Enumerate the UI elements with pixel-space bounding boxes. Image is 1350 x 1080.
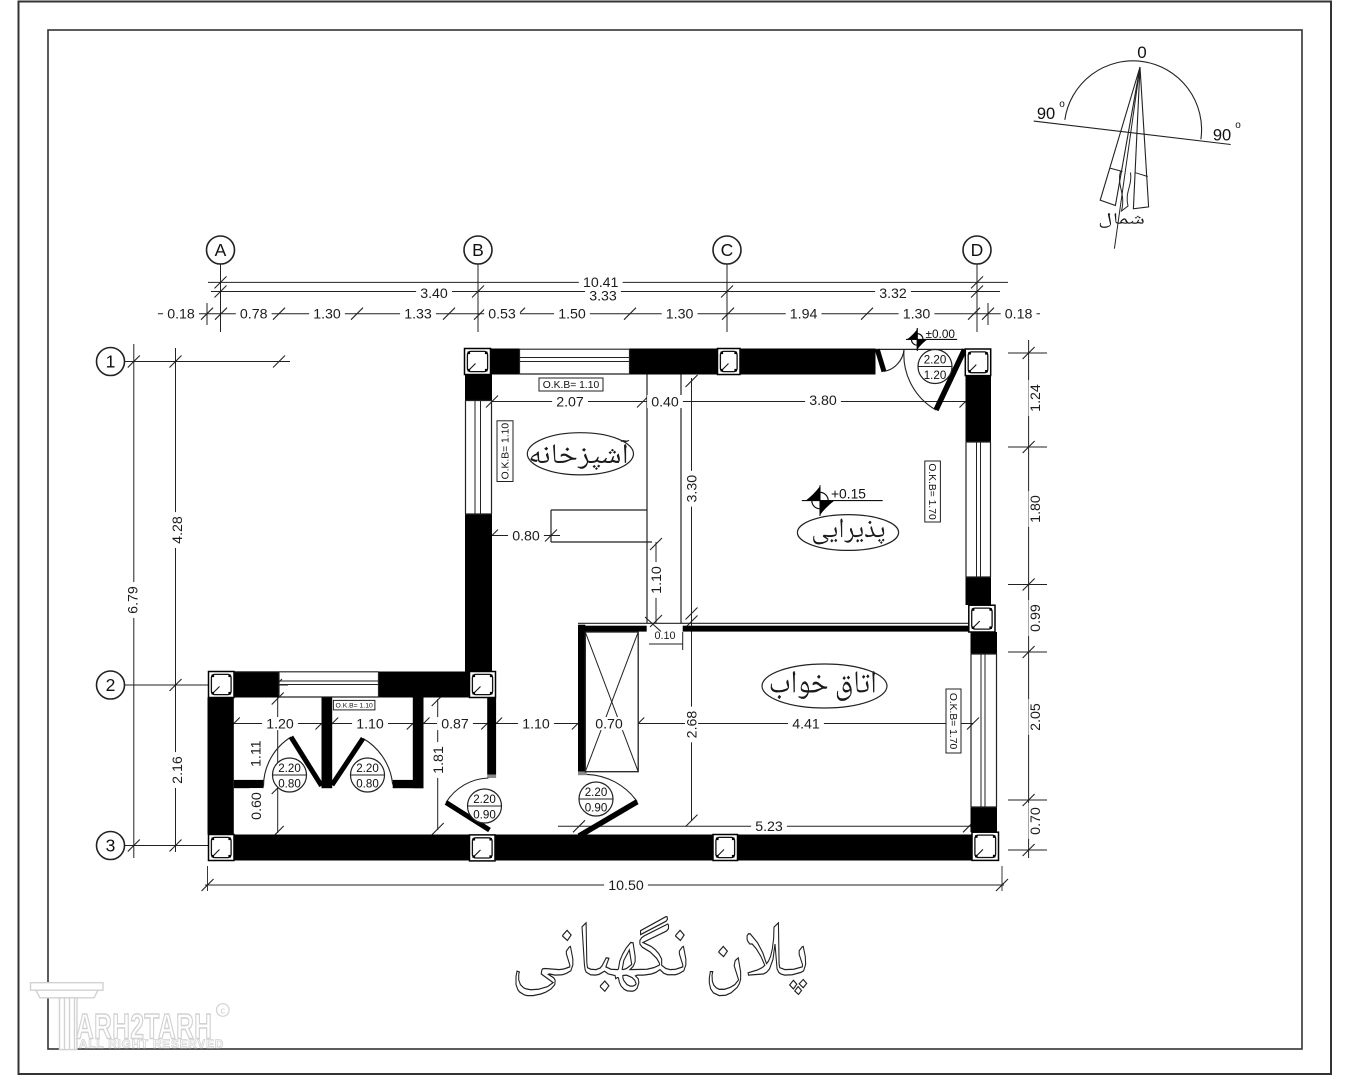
svg-text:6.79: 6.79	[125, 586, 141, 614]
svg-text:0.80: 0.80	[512, 528, 540, 544]
svg-text:0.99: 0.99	[1028, 604, 1044, 632]
svg-text:0.87: 0.87	[441, 716, 469, 732]
svg-text:0.53: 0.53	[488, 307, 516, 323]
svg-text:o: o	[1235, 120, 1241, 131]
svg-text:0.18: 0.18	[167, 307, 195, 323]
svg-text:B: B	[472, 240, 484, 260]
svg-text:0.80: 0.80	[278, 777, 301, 790]
svg-text:2.20: 2.20	[278, 762, 301, 775]
svg-text:90: 90	[1213, 127, 1231, 145]
svg-text:3: 3	[106, 836, 116, 856]
svg-text:4.41: 4.41	[792, 716, 820, 732]
svg-text:o: o	[1059, 99, 1065, 110]
svg-text:2.20: 2.20	[356, 762, 379, 775]
svg-text:2.16: 2.16	[170, 756, 186, 784]
svg-text:1.24: 1.24	[1028, 384, 1044, 412]
svg-text:1.10: 1.10	[649, 566, 665, 594]
svg-text:0.40: 0.40	[651, 394, 679, 410]
svg-text:4.28: 4.28	[170, 516, 186, 544]
svg-text:1.30: 1.30	[313, 307, 341, 323]
svg-text:C: C	[721, 240, 734, 260]
svg-text:3.33: 3.33	[589, 288, 617, 304]
svg-text:1.10: 1.10	[522, 716, 550, 732]
svg-text:0.80: 0.80	[356, 777, 379, 790]
svg-text:1.20: 1.20	[266, 716, 294, 732]
svg-text:1.50: 1.50	[558, 307, 586, 323]
svg-text:1: 1	[106, 352, 116, 372]
svg-text:2.20: 2.20	[585, 786, 608, 799]
svg-text:1.80: 1.80	[1028, 495, 1044, 523]
svg-text:3.30: 3.30	[684, 475, 700, 503]
svg-text:0.60: 0.60	[249, 792, 265, 820]
svg-text:1.10: 1.10	[356, 716, 384, 732]
svg-text:0.10: 0.10	[654, 630, 675, 642]
svg-text:5.23: 5.23	[755, 819, 783, 835]
svg-text:0: 0	[1137, 43, 1146, 62]
svg-text:O.K.B= 1.10: O.K.B= 1.10	[543, 380, 600, 391]
svg-text:0.70: 0.70	[1028, 807, 1044, 835]
svg-text:2.68: 2.68	[684, 711, 700, 739]
svg-text:3.80: 3.80	[809, 393, 837, 409]
svg-text:O.K.B= 1.70: O.K.B= 1.70	[947, 693, 958, 750]
svg-text:10.50: 10.50	[608, 878, 644, 894]
svg-text:0.18: 0.18	[1005, 307, 1033, 323]
svg-text:D: D	[971, 240, 984, 260]
svg-text:0.90: 0.90	[585, 801, 608, 814]
svg-text:ALL RIGHT RESERVED: ALL RIGHT RESERVED	[79, 1037, 224, 1051]
svg-text:1.33: 1.33	[404, 307, 432, 323]
svg-text:3.40: 3.40	[420, 286, 448, 302]
svg-text:1.94: 1.94	[790, 307, 818, 323]
svg-text:1.81: 1.81	[431, 746, 447, 774]
svg-text:c: c	[220, 1006, 225, 1017]
svg-text:A: A	[215, 240, 227, 260]
svg-text:1.20: 1.20	[924, 369, 947, 382]
svg-text:O.K.B= 1.10: O.K.B= 1.10	[501, 423, 512, 480]
svg-text:O.K.B= 1.10: O.K.B= 1.10	[336, 703, 373, 710]
svg-text:0.70: 0.70	[595, 716, 623, 732]
svg-text:1.30: 1.30	[666, 307, 694, 323]
svg-text:1.11: 1.11	[248, 740, 264, 767]
svg-text:±0.00: ±0.00	[926, 327, 956, 341]
svg-text:+0.15: +0.15	[831, 487, 866, 502]
svg-text:1.30: 1.30	[903, 307, 931, 323]
svg-text:2.07: 2.07	[556, 394, 584, 410]
svg-text:90: 90	[1037, 105, 1055, 123]
svg-text:O.K.B= 1.70: O.K.B= 1.70	[926, 463, 937, 520]
svg-text:2: 2	[106, 675, 116, 695]
svg-text:2.05: 2.05	[1028, 703, 1044, 731]
svg-text:3.32: 3.32	[879, 286, 907, 302]
svg-text:2.20: 2.20	[473, 793, 496, 806]
svg-text:0.90: 0.90	[473, 808, 496, 821]
svg-text:0.78: 0.78	[240, 307, 268, 323]
svg-text:2.20: 2.20	[924, 353, 947, 366]
